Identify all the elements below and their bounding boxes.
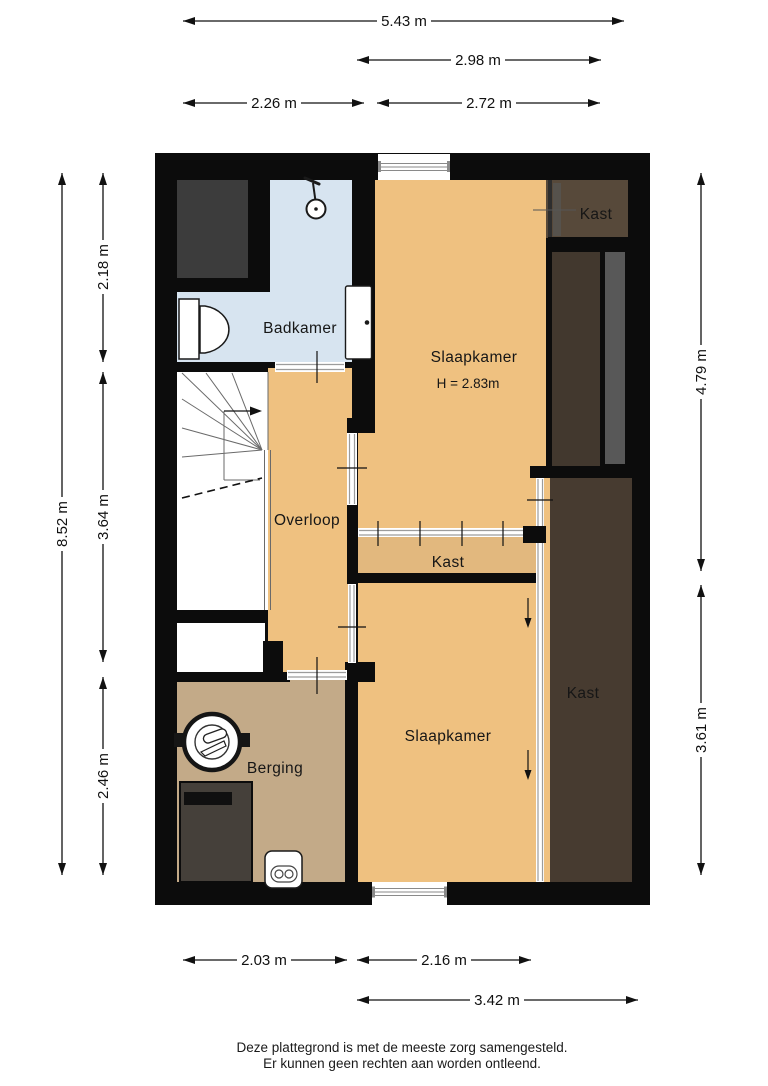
door-track-band — [275, 362, 345, 372]
door-leaf-badkamer — [346, 286, 372, 359]
under-stairs-area — [177, 623, 265, 672]
dimension-arrow — [183, 17, 195, 25]
window-bottom — [372, 882, 447, 905]
dimension-left-218: 2.18 m — [95, 173, 113, 362]
dimension-top-226: 2.26 m — [183, 95, 364, 113]
room-label-kast-midden: Kast — [432, 554, 465, 571]
boiler-valve — [285, 870, 293, 878]
dimension-label: 2.16 m — [421, 952, 467, 969]
worktop-slot — [184, 792, 232, 805]
dimension-arrow — [626, 996, 638, 1004]
room-label-slaapkamer-beneden: Slaapkamer — [405, 728, 492, 745]
dimension-arrow — [183, 956, 195, 964]
shower-head-center — [314, 207, 318, 211]
dimension-arrow — [335, 956, 347, 964]
dimension-label: 5.43 m — [381, 13, 427, 30]
floor-plan-page: Badkamer Slaapkamer H = 2.83m Kast Overl… — [0, 0, 768, 1086]
wall-corner — [345, 662, 375, 682]
room-label-slaapkamer-boven: Slaapkamer — [431, 349, 518, 366]
dimension-label: 2.26 m — [251, 95, 297, 112]
dimension-arrow — [697, 173, 705, 185]
washer-tab — [174, 733, 183, 747]
dimension-label: 2.72 m — [466, 95, 512, 112]
room-label-berging: Berging — [247, 760, 303, 777]
dimension-arrow — [697, 863, 705, 875]
dimension-arrow — [612, 17, 624, 25]
wall-under-kast — [548, 237, 628, 252]
window-frame-cap — [378, 161, 381, 172]
dimension-arrow — [588, 99, 600, 107]
window-top — [378, 154, 450, 180]
dimension-label: 2.18 m — [95, 244, 112, 290]
room-label-badkamer: Badkamer — [263, 320, 337, 337]
wardrobe-strip-slider — [605, 252, 625, 464]
dimension-arrow — [99, 372, 107, 384]
dimension-arrow — [357, 956, 369, 964]
window-frame-cap — [372, 887, 375, 898]
dimension-arrow — [58, 863, 66, 875]
dimension-label: 3.61 m — [693, 707, 710, 753]
dimension-arrow — [99, 677, 107, 689]
dimension-label: 2.46 m — [95, 753, 112, 799]
dimension-arrow — [589, 56, 601, 64]
wall-jog — [263, 641, 283, 674]
dimension-label: 3.64 m — [95, 494, 112, 540]
wall-under-stairs — [177, 610, 268, 623]
dimension-top-272: 2.72 m — [377, 95, 600, 113]
wall-berging-top — [177, 672, 290, 682]
window-frame-cap — [444, 887, 447, 898]
washer-tab — [241, 733, 250, 747]
room-label-kast-rechts: Kast — [567, 685, 600, 702]
dimension-right-479: 4.79 m — [693, 173, 711, 571]
dimension-arrow — [99, 173, 107, 185]
dimension-label: 4.79 m — [693, 349, 710, 395]
dimension-arrow — [183, 99, 195, 107]
window-frame-cap — [447, 161, 450, 172]
door-track-band — [348, 584, 356, 663]
room-label-kast-rechtsboven: Kast — [580, 206, 613, 223]
boiler-icon — [265, 851, 302, 888]
toilet-cistern — [179, 299, 199, 359]
dimension-arrow — [697, 559, 705, 571]
dimension-arrow — [58, 173, 66, 185]
dimension-left-852: 8.52 m — [54, 173, 72, 875]
void-area — [177, 180, 248, 278]
dimension-label: 8.52 m — [54, 501, 71, 547]
dimension-right-361: 3.61 m — [693, 585, 711, 875]
door-handle-icon — [365, 320, 370, 325]
dimension-left-246: 2.46 m — [95, 677, 113, 875]
room-slaapkamer-boven-fill-b — [358, 433, 375, 530]
kast-rechtsboven-edge — [548, 180, 552, 238]
dimension-arrow — [377, 99, 389, 107]
dimension-arrow — [99, 350, 107, 362]
disclaimer-line-2: Er kunnen geen rechten aan worden ontlee… — [263, 1056, 541, 1071]
dimension-arrow — [357, 56, 369, 64]
dimension-bottom-342: 3.42 m — [357, 992, 638, 1010]
door-track-band — [358, 528, 525, 537]
dimension-top-543: 5.43 m — [183, 13, 624, 31]
wall-kast-left — [347, 505, 358, 584]
dimension-arrow — [357, 996, 369, 1004]
wall-wardrobe-divider — [530, 466, 628, 478]
disclaimer-line-1: Deze plattegrond is met de meeste zorg s… — [237, 1040, 568, 1055]
dimension-arrow — [519, 956, 531, 964]
dimension-arrow — [99, 863, 107, 875]
dimension-label: 2.03 m — [241, 952, 287, 969]
window-bottom-recess — [372, 882, 447, 905]
room-label-overloop: Overloop — [274, 512, 340, 529]
stairwell-area — [177, 372, 268, 610]
room-kast-rechts-fill — [550, 478, 632, 882]
boiler-valve — [275, 870, 283, 878]
dimension-label: 2.98 m — [455, 52, 501, 69]
worktop — [180, 782, 252, 882]
room-ceiling-height: H = 2.83m — [437, 376, 500, 391]
dimension-top-298: 2.98 m — [357, 52, 601, 70]
dimension-bottom-203: 2.03 m — [183, 952, 347, 970]
door-track-band — [347, 433, 357, 505]
dimension-arrow — [99, 650, 107, 662]
floor-plan-canvas: Badkamer Slaapkamer H = 2.83m Kast Overl… — [0, 0, 768, 1086]
dimension-arrow — [697, 585, 705, 597]
dimension-label: 3.42 m — [474, 992, 520, 1009]
dimension-bottom-216: 2.16 m — [357, 952, 531, 970]
wardrobe-strip-fill — [552, 252, 600, 468]
dimension-left-364: 3.64 m — [95, 372, 113, 662]
wall-kast-end-block — [523, 526, 546, 543]
wall-segment — [347, 418, 358, 434]
dimension-arrow — [352, 99, 364, 107]
